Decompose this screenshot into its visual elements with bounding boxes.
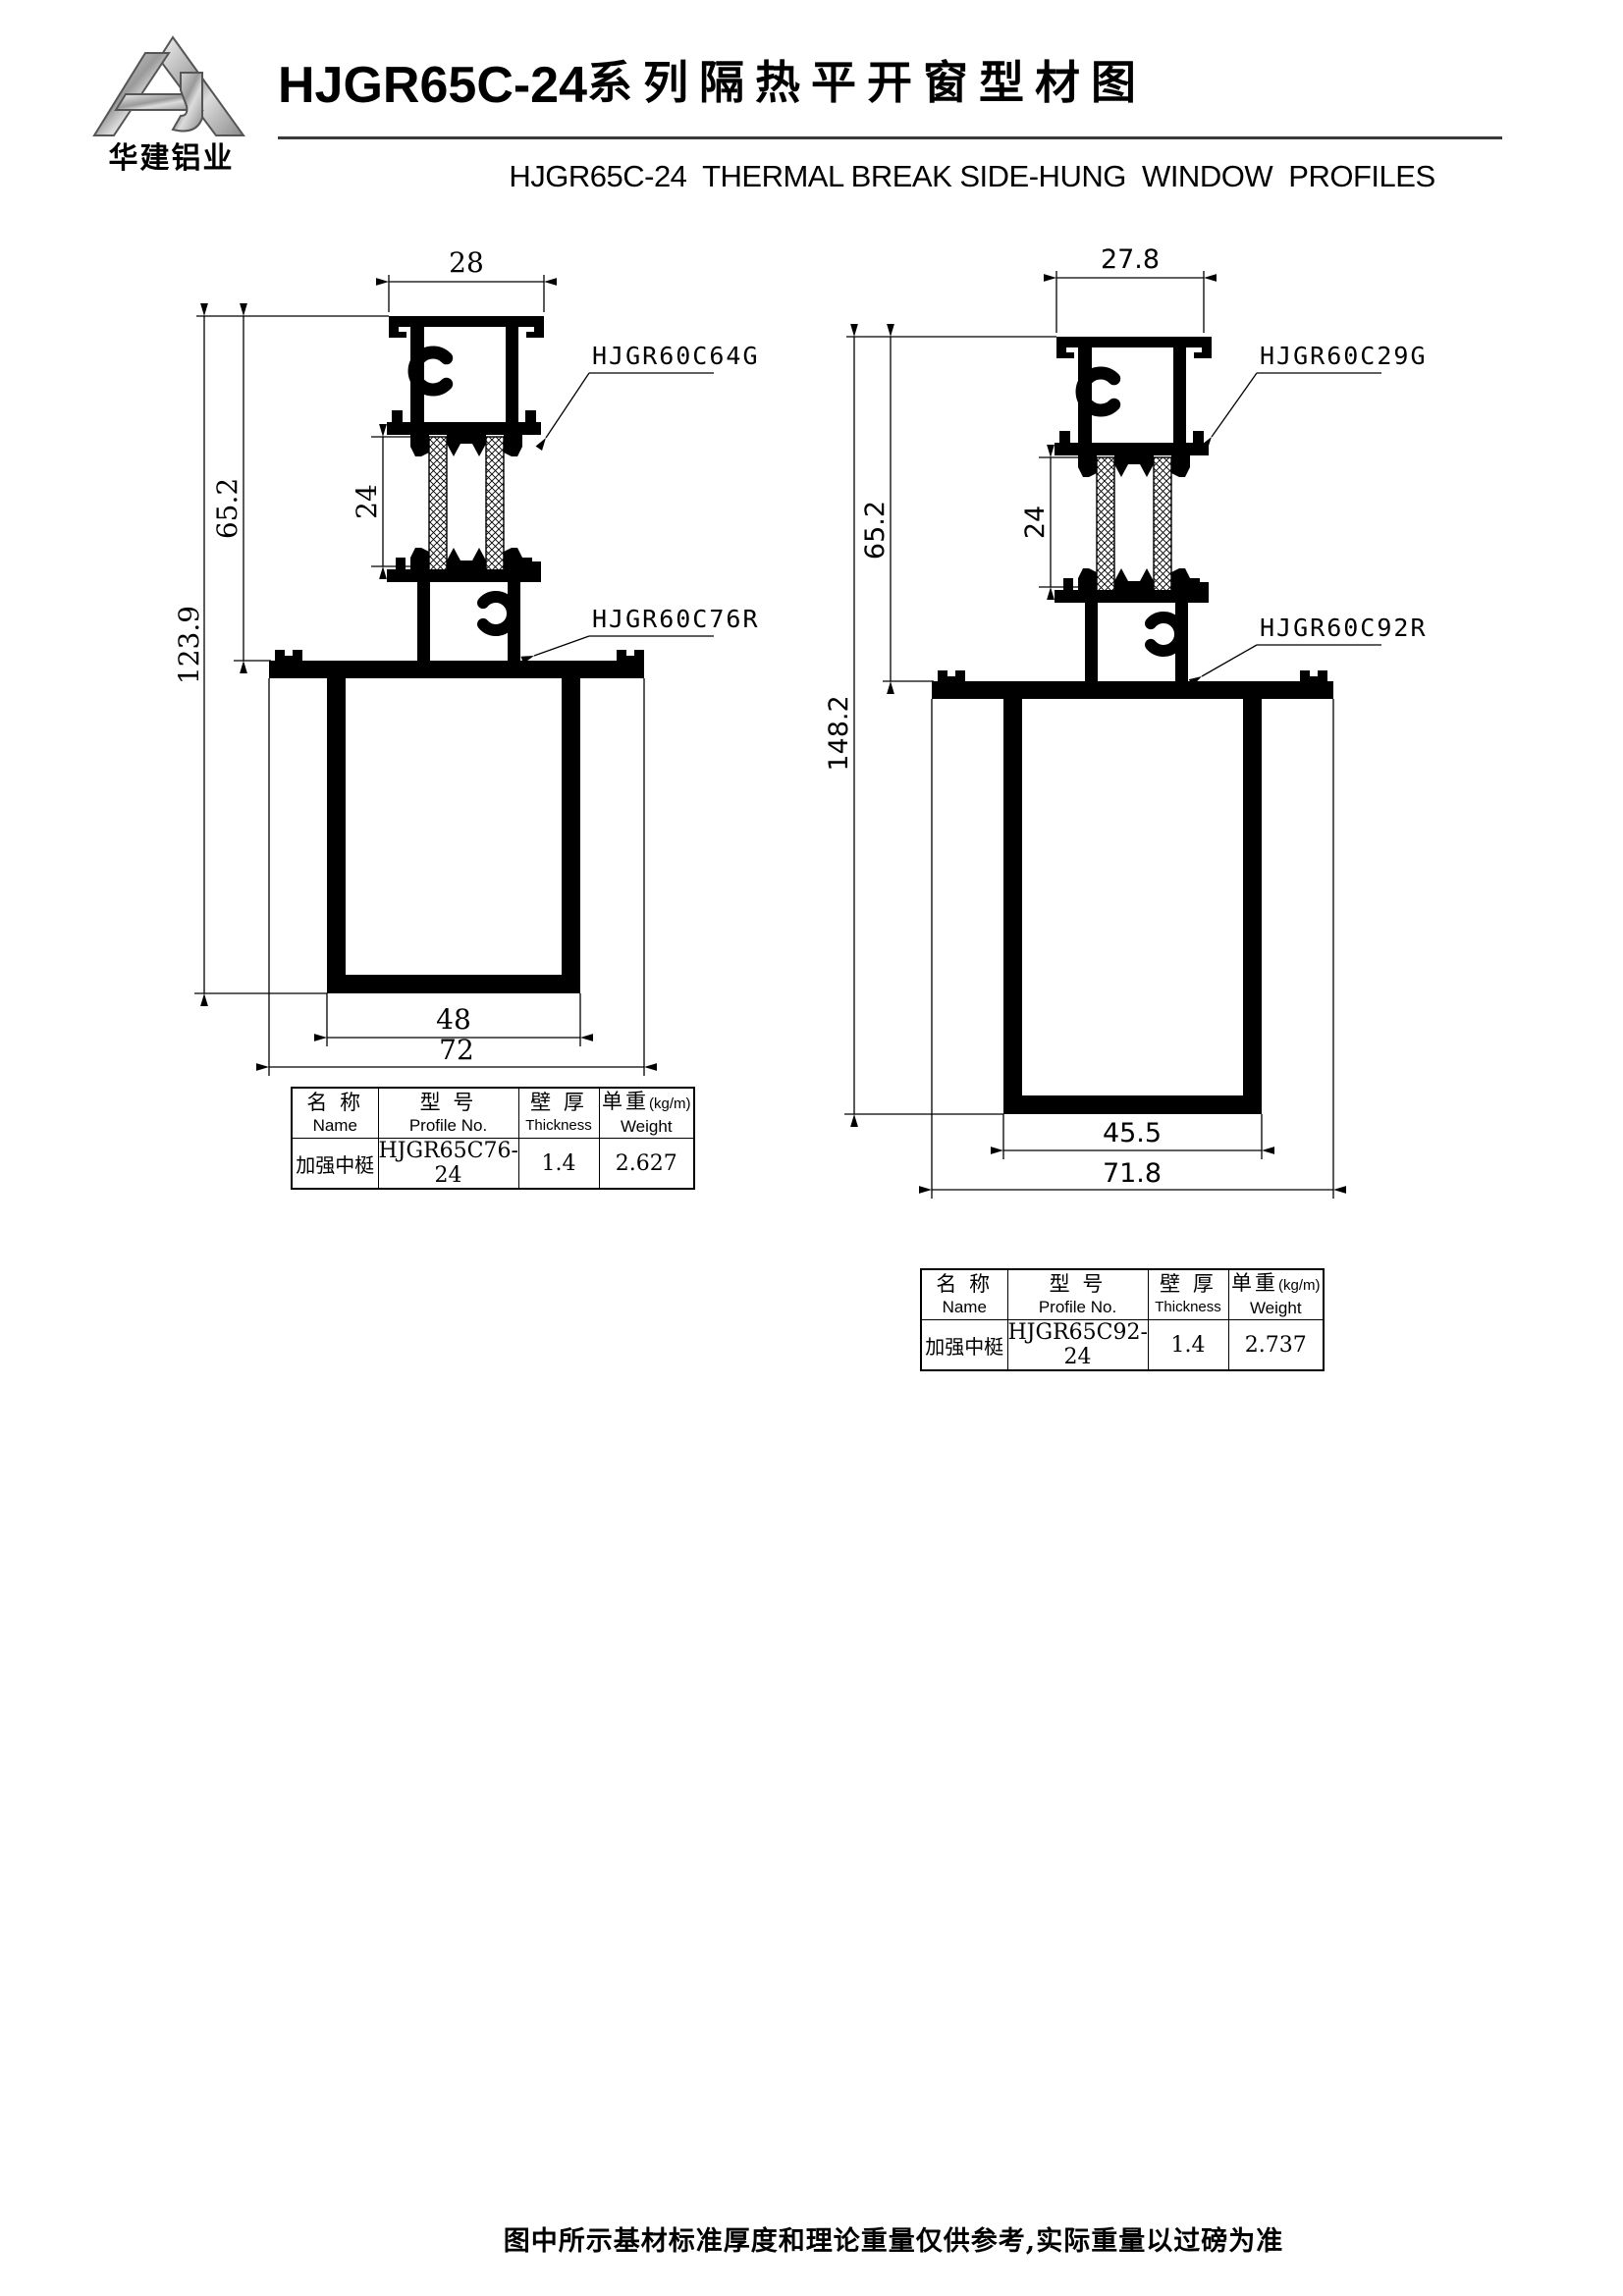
- catalog-page: 华建铝业 HJGR65C-24系列隔热平开窗型材图 HJGR65C-24 THE…: [0, 0, 1623, 2296]
- header-weight: 单重(kg/m)Weight: [1228, 1269, 1324, 1320]
- right-profile-drawing: 27.8 148.2 65.2 24 45.5: [824, 244, 1428, 1199]
- profile-code: HJGR60C29G: [1260, 342, 1428, 370]
- upper-assembly-left: [387, 316, 544, 661]
- spec-table-left: 名 称Name 型 号Profile No. 壁 厚Thickness 单重(k…: [291, 1087, 695, 1190]
- plate-clip: [938, 670, 965, 681]
- table-header-row: 名 称Name 型 号Profile No. 壁 厚Thickness 单重(k…: [292, 1088, 694, 1139]
- cell-profile-no: HJGR65C76-24: [378, 1139, 518, 1190]
- dim-upper-height-right: 65.2: [860, 337, 934, 681]
- cell-weight: 2.627: [599, 1139, 694, 1190]
- left-profile-drawing: 28 123.9 65.2 24 48: [173, 246, 760, 1076]
- header-profile-no: 型 号Profile No.: [378, 1088, 518, 1139]
- profile-code: HJGR60C92R: [1260, 614, 1428, 642]
- label-top-profile-right: HJGR60C29G: [1212, 342, 1428, 437]
- dim-total-height-right: 148.2: [824, 337, 1003, 1114]
- hollow-box-cavity: [346, 678, 562, 975]
- cell-thickness: 1.4: [518, 1139, 599, 1190]
- plate-clip: [617, 650, 644, 661]
- plate-clip: [275, 650, 302, 661]
- plate-clip: [1300, 670, 1327, 681]
- dim-text: 72: [439, 1034, 474, 1066]
- dim-text: 24: [1020, 506, 1051, 539]
- footer-disclaimer: 图中所示基材标准厚度和理论重量仅供参考,实际重量以过磅为准: [393, 2219, 1394, 2258]
- dim-top-width-right: 27.8: [1056, 244, 1204, 333]
- dim-text: 24: [351, 484, 383, 519]
- dim-text: 45.5: [1103, 1118, 1162, 1148]
- cell-profile-no: HJGR65C92-24: [1007, 1320, 1148, 1371]
- label-bottom-profile-left: HJGR60C76R: [534, 605, 760, 656]
- header-weight: 单重(kg/m)Weight: [599, 1088, 694, 1139]
- dim-text: 28: [449, 246, 484, 279]
- dim-text: 27.8: [1101, 244, 1160, 275]
- cell-thickness: 1.4: [1148, 1320, 1228, 1371]
- dim-inner-width-right: 45.5: [1003, 1114, 1262, 1159]
- table-header-row: 名 称Name 型 号Profile No. 壁 厚Thickness 单重(k…: [921, 1269, 1324, 1320]
- dim-text: 148.2: [824, 695, 854, 771]
- header-profile-no: 型 号Profile No.: [1007, 1269, 1148, 1320]
- header-thickness: 壁 厚Thickness: [1148, 1269, 1228, 1320]
- dim-text: 65.2: [211, 478, 243, 539]
- header-name: 名 称Name: [292, 1088, 378, 1139]
- table-data-row: 加强中梃 HJGR65C76-24 1.4 2.627: [292, 1139, 694, 1190]
- hollow-box-cavity: [1022, 699, 1243, 1095]
- label-top-profile-left: HJGR60C64G: [546, 342, 760, 438]
- dim-upper-height-left: 65.2: [211, 316, 271, 661]
- header-name: 名 称Name: [921, 1269, 1007, 1320]
- cell-name: 加强中梃: [921, 1320, 1007, 1371]
- dim-total-height-left: 123.9: [173, 316, 327, 993]
- dim-text: 123.9: [173, 606, 205, 684]
- upper-assembly-right: [1055, 337, 1212, 681]
- base-plate: [269, 661, 644, 678]
- table-data-row: 加强中梃 HJGR65C92-24 1.4 2.737: [921, 1320, 1324, 1371]
- profile-code: HJGR60C64G: [592, 342, 760, 370]
- spec-table-right: 名 称Name 型 号Profile No. 壁 厚Thickness 单重(k…: [920, 1268, 1325, 1371]
- dim-text: 71.8: [1103, 1158, 1162, 1189]
- dim-top-width-left: 28: [389, 246, 544, 312]
- cell-name: 加强中梃: [292, 1139, 378, 1190]
- profile-drawings-sheet: 28 123.9 65.2 24 48: [0, 0, 1623, 2296]
- label-bottom-profile-right: HJGR60C92R: [1202, 614, 1428, 676]
- dim-text: 65.2: [860, 501, 891, 560]
- base-plate: [932, 681, 1333, 699]
- header-thickness: 壁 厚Thickness: [518, 1088, 599, 1139]
- profile-code: HJGR60C76R: [592, 605, 760, 633]
- cell-weight: 2.737: [1228, 1320, 1324, 1371]
- dim-text: 48: [436, 1003, 471, 1036]
